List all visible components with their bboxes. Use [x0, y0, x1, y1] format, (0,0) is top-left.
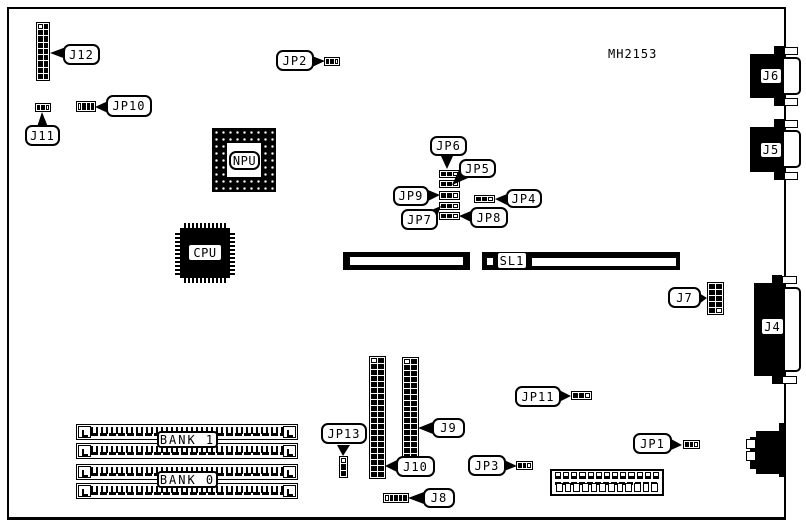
connector-j8-jumper: [383, 493, 409, 503]
keyboard-connector-pin-top: [746, 439, 756, 449]
jumper-jp13: [339, 456, 348, 478]
jumper-jp1: [683, 440, 700, 449]
expansion-slot-left: [343, 252, 470, 270]
label-jp13: JP13: [321, 423, 367, 444]
label-j7: J7: [668, 287, 701, 308]
label-jp9: JP9: [393, 186, 429, 206]
connector-j6-tab-top: [774, 46, 784, 56]
label-jp7: JP7: [401, 209, 438, 230]
connector-j6-screw-top: [784, 47, 798, 55]
label-j6: J6: [760, 68, 782, 84]
part-number-text: MH2153: [608, 47, 657, 61]
jumper-jp10: [76, 101, 96, 112]
connector-j5-screw-bottom: [784, 172, 798, 180]
connector-j4-screw-top: [782, 276, 797, 284]
jumper-jp11: [571, 391, 592, 400]
label-j10: J10: [396, 456, 435, 477]
connector-j6-screw-bottom: [784, 98, 798, 106]
label-bank1: BANK 1: [157, 431, 218, 448]
label-j5: J5: [760, 142, 782, 158]
label-j9: J9: [432, 418, 465, 438]
connector-j10-header: [369, 356, 386, 479]
slot-opening: [532, 258, 676, 266]
connector-j7-header: [707, 282, 724, 315]
connector-j6-tab-bottom: [774, 96, 784, 106]
connector-j4-tab-bottom: [772, 374, 782, 384]
keyboard-connector-body: [756, 431, 781, 474]
label-j4: J4: [761, 318, 784, 335]
cpu-pins-right: [230, 233, 235, 275]
slot-opening: [350, 257, 463, 265]
connector-j12-header: [36, 22, 50, 81]
jumper-jp4: [474, 195, 495, 203]
label-jp8: JP8: [470, 207, 508, 228]
jumper-jp8: [439, 212, 460, 220]
jumper-jp3: [516, 461, 533, 470]
jumper-jp9: [439, 191, 460, 200]
label-jp2: JP2: [276, 50, 314, 71]
label-jp10: JP10: [106, 95, 152, 117]
label-j11: J11: [25, 125, 60, 146]
connector-j11-jumper: [35, 103, 51, 112]
label-jp4: JP4: [506, 189, 542, 208]
connector-j5-screw-top: [784, 120, 798, 128]
label-bank0: BANK 0: [157, 471, 218, 488]
keyboard-connector-pin-bottom: [746, 451, 756, 461]
cpu-pins-bottom: [184, 278, 228, 283]
jumper-jp7: [439, 202, 460, 210]
label-jp3: JP3: [468, 455, 506, 476]
label-jp1: JP1: [633, 433, 672, 454]
label-cpu: CPU: [188, 244, 222, 261]
connector-j5-tab-top: [774, 119, 784, 129]
power-connector-pins: [556, 483, 658, 492]
connector-j5-tab-bottom: [774, 170, 784, 180]
slot-key: [487, 258, 493, 265]
label-npu: NPU: [229, 151, 260, 170]
label-jp6: JP6: [430, 136, 467, 156]
jumper-jp6: [439, 170, 460, 178]
power-connector: [550, 469, 664, 496]
jumper-jp2: [324, 57, 340, 66]
label-sl1: SL1: [497, 252, 527, 269]
motherboard-diagram: MH2153 J12 J11 JP10 JP2 NPU CPU SL1 JP6 …: [0, 0, 806, 527]
label-jp11: JP11: [515, 386, 561, 407]
connector-j4-tab-top: [772, 275, 782, 285]
label-j12: J12: [63, 44, 100, 65]
label-jp5: JP5: [459, 159, 496, 178]
jumper-jp5: [439, 180, 460, 188]
connector-j4-screw-bottom: [782, 376, 797, 384]
power-connector-tabs: [555, 472, 659, 479]
connector-j9-header: [402, 357, 419, 461]
label-j8: J8: [423, 488, 455, 508]
